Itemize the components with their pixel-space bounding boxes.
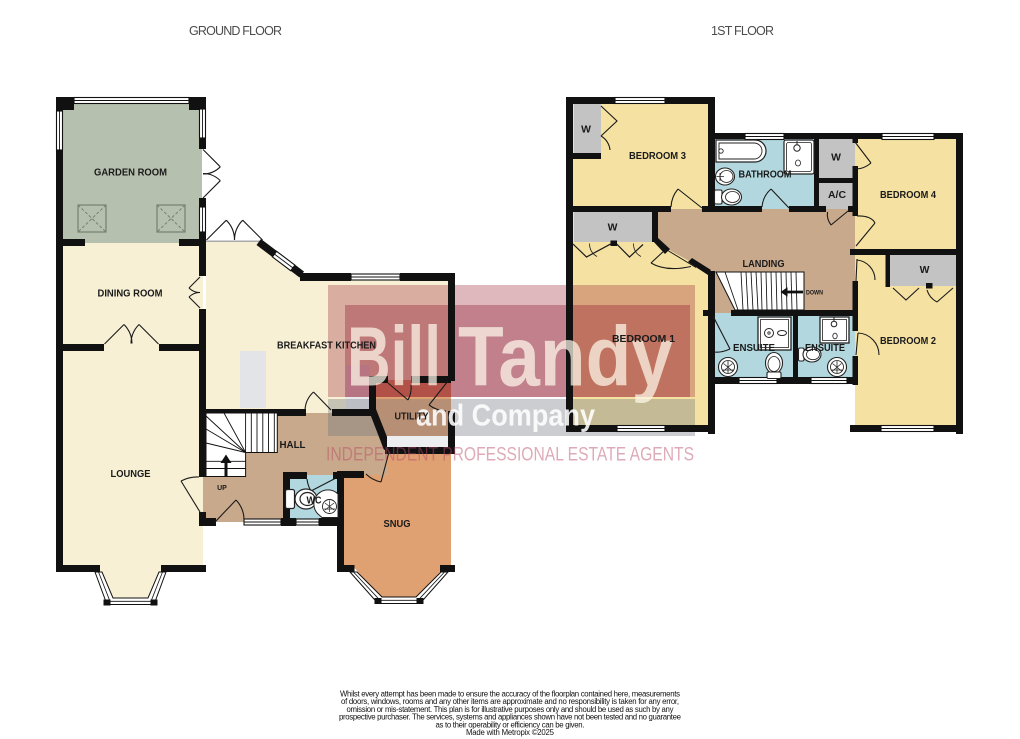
svg-text:GARDEN ROOM: GARDEN ROOM <box>94 168 167 179</box>
svg-text:W: W <box>920 265 930 276</box>
svg-text:UP: UP <box>217 485 227 492</box>
svg-text:and Company: and Company <box>416 398 596 433</box>
svg-text:BEDROOM 3: BEDROOM 3 <box>629 151 686 162</box>
svg-text:Made with Metropix ©2025: Made with Metropix ©2025 <box>466 728 555 737</box>
svg-text:UTILITY: UTILITY <box>395 412 429 423</box>
svg-text:BEDROOM 1: BEDROOM 1 <box>612 334 675 345</box>
svg-text:BATHROOM: BATHROOM <box>739 170 792 181</box>
svg-text:DINING ROOM: DINING ROOM <box>98 289 163 300</box>
svg-text:LOUNGE: LOUNGE <box>111 469 151 480</box>
svg-text:BEDROOM 4: BEDROOM 4 <box>880 190 936 201</box>
svg-text:DOWN: DOWN <box>806 290 823 297</box>
svg-text:W: W <box>608 223 618 234</box>
svg-text:Bill: Bill <box>347 310 441 404</box>
svg-text:1ST FLOOR: 1ST FLOOR <box>711 24 774 38</box>
svg-text:INDEPENDENT PROFESSIONAL ESTAT: INDEPENDENT PROFESSIONAL ESTATE AGENTS <box>326 445 694 466</box>
svg-text:GROUND FLOOR: GROUND FLOOR <box>189 24 282 38</box>
svg-text:ENSUITE: ENSUITE <box>805 343 845 354</box>
svg-text:W: W <box>581 125 591 136</box>
svg-text:ENSUITE: ENSUITE <box>733 343 775 354</box>
svg-text:BEDROOM 2: BEDROOM 2 <box>880 336 936 347</box>
svg-text:HALL: HALL <box>280 440 307 451</box>
svg-text:LANDING: LANDING <box>743 259 785 270</box>
svg-text:W: W <box>831 153 841 164</box>
svg-text:A/C: A/C <box>828 190 846 201</box>
svg-text:WC: WC <box>307 496 322 507</box>
svg-text:BREAKFAST KITCHEN: BREAKFAST KITCHEN <box>277 341 376 352</box>
svg-text:SNUG: SNUG <box>384 519 411 530</box>
svg-text:Tandy: Tandy <box>458 310 673 404</box>
